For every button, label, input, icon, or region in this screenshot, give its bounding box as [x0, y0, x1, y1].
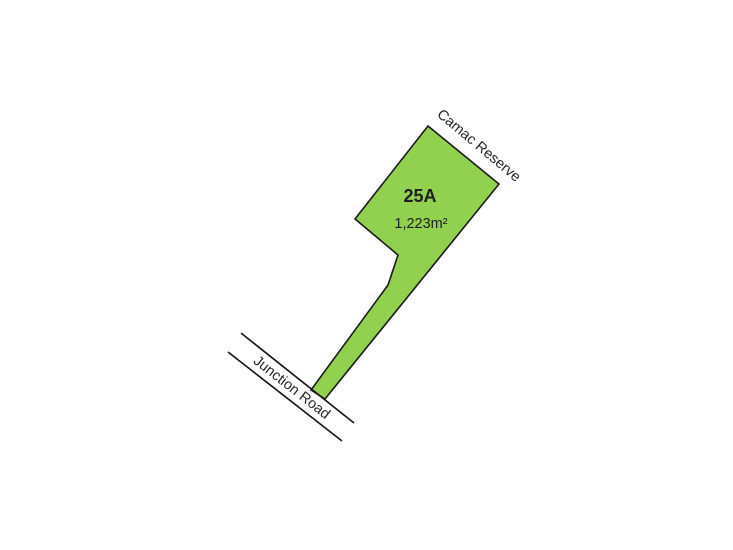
site-plan: 25A 1,223m² Camac Reserve Junction Road — [0, 0, 733, 550]
lot-parcel-shape — [311, 126, 499, 399]
lot-number-label: 25A — [403, 186, 436, 206]
site-plan-canvas: 25A 1,223m² Camac Reserve Junction Road — [0, 0, 733, 550]
lot-area-label: 1,223m² — [394, 216, 447, 232]
